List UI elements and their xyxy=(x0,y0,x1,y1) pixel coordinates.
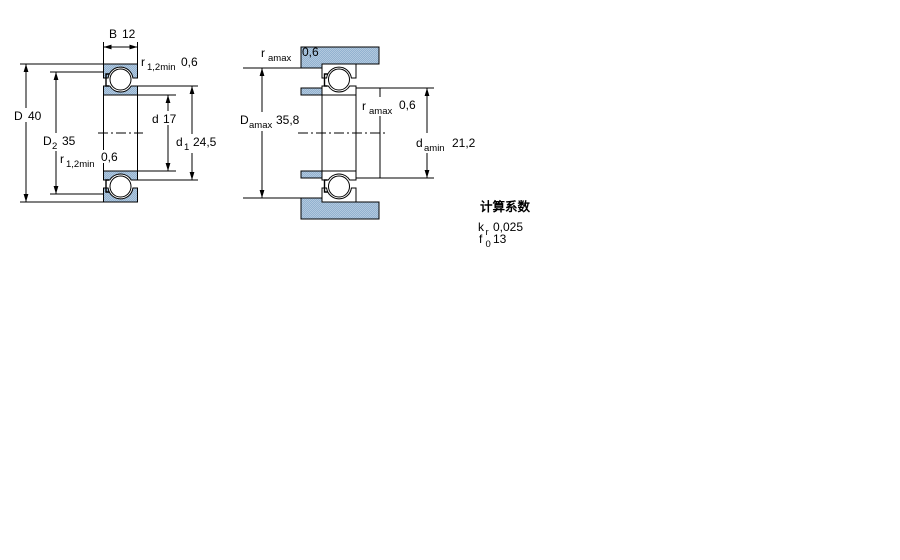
arrowhead-down-icon xyxy=(24,194,29,202)
label-Damax-sym: D xyxy=(240,113,249,127)
label-D2-sub: 2 xyxy=(52,141,57,152)
factor-f0-val: 13 xyxy=(493,232,507,246)
arrowhead-down-icon xyxy=(54,186,59,194)
arrowhead-up-icon xyxy=(190,86,195,94)
arrowhead-down-icon xyxy=(260,190,265,198)
label-ramax-mid-val: 0,6 xyxy=(399,98,416,112)
label-damin-sym: d xyxy=(416,136,423,150)
label-d1-sub: 1 xyxy=(184,142,189,153)
bearing-technical-drawing: B 12 D 40 D 2 35 d 17 d 1 24,5 r 1,2min … xyxy=(0,0,900,560)
label-ramax-top-sub: amax xyxy=(268,53,291,64)
label-damin-val: 21,2 xyxy=(452,136,476,150)
calc-factors-heading: 计算系数 xyxy=(480,199,531,214)
label-ramax-mid-sub: amax xyxy=(369,106,392,117)
factor-f0-sub: 0 xyxy=(486,239,491,250)
label-ramax-mid-sym: r xyxy=(362,99,366,113)
arrowhead-down-icon xyxy=(425,170,430,178)
label-D2-sym: D xyxy=(43,134,52,148)
label-damin-sub: amin xyxy=(424,143,445,154)
label-ramax-top-sym: r xyxy=(261,46,265,60)
abutment-view: r amax 0,6 D amax 35,8 r amax 0,6 d amin… xyxy=(238,45,478,219)
label-r-top-sym: r xyxy=(141,55,145,69)
bearing-section xyxy=(98,64,143,202)
arrowhead-left-icon xyxy=(104,45,112,50)
bearing-section-mounted xyxy=(298,64,386,202)
label-d-sym: d xyxy=(152,112,159,126)
cross-section-view: B 12 D 40 D 2 35 d 17 d 1 24,5 r 1,2min … xyxy=(11,27,217,202)
arrowhead-up-icon xyxy=(260,68,265,76)
label-Damax-val: 35,8 xyxy=(276,113,300,127)
label-D-sym: D xyxy=(14,109,23,123)
label-r-top-val: 0,6 xyxy=(181,55,198,69)
label-ramax-top-val: 0,6 xyxy=(302,45,319,59)
label-D-val: 40 xyxy=(28,109,42,123)
ball-top xyxy=(329,69,350,90)
arrowhead-up-icon xyxy=(54,72,59,80)
shaft-shoulder-bottom xyxy=(301,171,322,178)
dim-bore-diameter-d xyxy=(138,95,177,171)
label-d-val: 17 xyxy=(163,112,177,126)
label-Damax-sub: amax xyxy=(249,120,272,131)
arrowhead-up-icon xyxy=(24,64,29,72)
arrowhead-right-icon xyxy=(130,45,138,50)
arrowhead-up-icon xyxy=(166,95,171,103)
label-r-bottom-sym: r xyxy=(60,152,64,166)
drawing-page: B 12 D 40 D 2 35 d 17 d 1 24,5 r 1,2min … xyxy=(0,0,900,560)
ball-top xyxy=(110,69,131,90)
arrowhead-up-icon xyxy=(425,88,430,96)
calculation-factors-block: 计算系数 k r 0,025 f 0 13 xyxy=(478,199,531,250)
label-r-bottom-val: 0,6 xyxy=(101,150,118,164)
label-D2-val: 35 xyxy=(62,134,76,148)
arrowhead-down-icon xyxy=(190,172,195,180)
label-d1-val: 24,5 xyxy=(193,135,217,149)
factor-f0-sym: f xyxy=(479,232,483,246)
dim-housing-abutment-Damax xyxy=(243,68,303,198)
arrowhead-down-icon xyxy=(166,163,171,171)
label-r-bottom-sub: 1,2min xyxy=(66,159,95,170)
dim-width-B xyxy=(104,42,138,64)
shaft-shoulder-top xyxy=(301,88,322,95)
label-B-sym: B xyxy=(109,27,117,41)
ball-bottom xyxy=(110,176,131,197)
label-B-val: 12 xyxy=(122,27,136,41)
factor-kr-sub: r xyxy=(486,227,489,238)
label-r-top-sub: 1,2min xyxy=(147,62,176,73)
label-d1-sym: d xyxy=(176,135,183,149)
ball-bottom xyxy=(329,176,350,197)
